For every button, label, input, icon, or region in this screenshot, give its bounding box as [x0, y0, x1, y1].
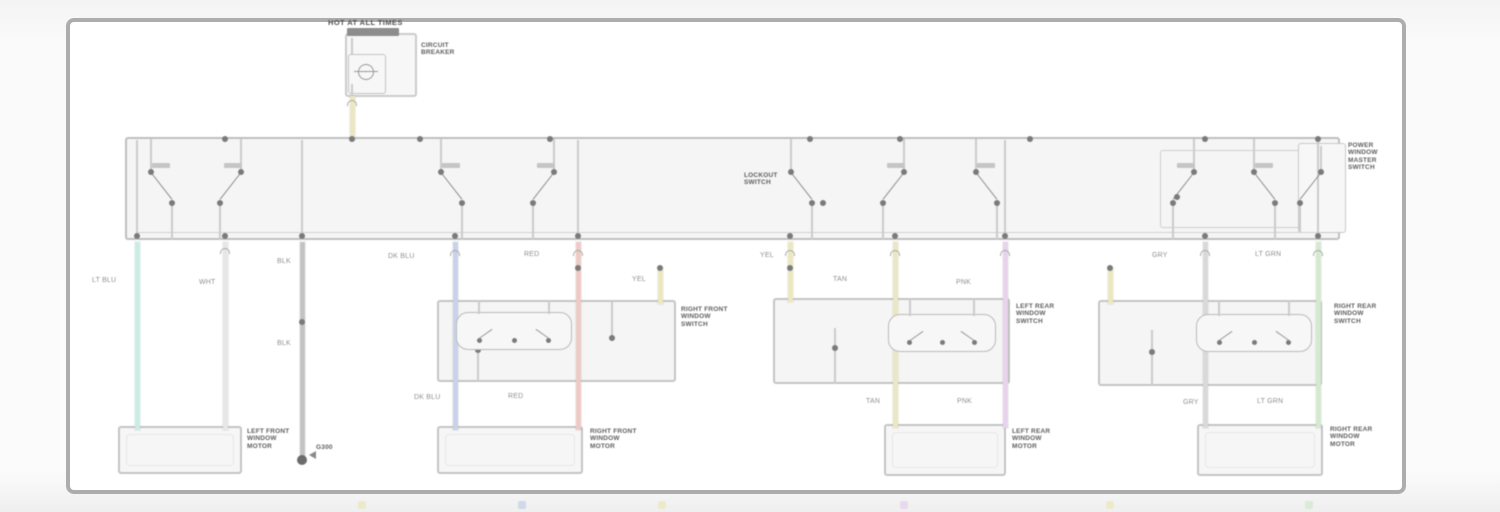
switch-4-contact-dot — [809, 200, 815, 206]
switch-1-bottom-stub — [219, 203, 221, 240]
lockout-switch-label-line: LOCKOUT — [744, 172, 778, 179]
lf-motor-label: LEFT FRONTWINDOWMOTOR — [247, 428, 289, 450]
rf-motor-label-line: WINDOW — [590, 435, 637, 442]
inline-connector-icon-3 — [573, 250, 583, 256]
junction-dot-14 — [787, 233, 793, 239]
junction-dot-2 — [417, 136, 423, 142]
wire-color-label-14: TAN — [866, 398, 880, 405]
cutoff-wire-smudge-4 — [1106, 501, 1114, 509]
junction-dot-5 — [897, 136, 903, 142]
master-switch-label-line: WINDOW — [1348, 149, 1378, 156]
switch-1-contact-dot — [217, 200, 223, 206]
junction-dot-19 — [575, 265, 581, 271]
rf-switch-rocker-contact-1 — [512, 338, 517, 343]
terminal-label-mark-3 — [537, 163, 555, 168]
junction-dot-20 — [657, 265, 663, 271]
rr-motor-label-line: WINDOW — [1330, 433, 1372, 440]
wire-color-label-4: DK BLU — [388, 253, 415, 260]
rf-motor-label: RIGHT FRONTWINDOWMOTOR — [590, 428, 637, 450]
cutoff-wire-smudge-3 — [900, 501, 908, 509]
switch-8-pivot-dot — [1251, 169, 1257, 175]
wire-color-label-1: WHT — [199, 279, 216, 286]
wire-stub-14 — [834, 328, 836, 384]
inline-connector-icon-4 — [785, 250, 795, 256]
master-right-box — [1298, 143, 1346, 233]
junction-dot-15 — [892, 233, 898, 239]
lr-motor-label-line: MOTOR — [1012, 443, 1050, 450]
junction-dot-11 — [299, 233, 305, 239]
switch-5-bottom-stub — [882, 203, 884, 240]
left-rear-motor-box-inner — [892, 432, 998, 468]
wire-stub-6 — [1317, 140, 1319, 240]
wire-stub-12 — [477, 348, 479, 382]
switch-1-pivot-dot — [238, 169, 244, 175]
rr-switch-label-line: WINDOW — [1334, 310, 1376, 317]
wire-stub-1 — [351, 84, 353, 96]
wire-color-label-16: GRY — [1183, 399, 1199, 406]
switch-7-bottom-stub — [1172, 203, 1174, 240]
rr-motor-label-line: RIGHT REAR — [1330, 426, 1372, 433]
master-switch-label-line: POWER — [1348, 142, 1378, 149]
cutoff-wire-smudge-2 — [658, 501, 666, 509]
wire-color-label-11: LT GRN — [1255, 251, 1281, 258]
wiring-diagram-page: HOT AT ALL TIMES LT BLUWHTBLKBLKDK BLURE… — [0, 0, 1500, 512]
inline-connector-icon-2 — [450, 250, 460, 256]
inline-connector-icon-0 — [347, 100, 357, 106]
lr-switch-label-line: WINDOW — [1016, 310, 1054, 317]
rr-switch-rocker-contact-1 — [1252, 340, 1257, 345]
junction-dot-18 — [1315, 233, 1321, 239]
lockout-switch-label: LOCKOUTSWITCH — [744, 172, 778, 187]
fuse-block-bus-bar — [347, 28, 399, 36]
switch-4-pivot-dot — [788, 169, 794, 175]
inline-connector-icon-1 — [220, 248, 230, 254]
switch-4-top-stub — [790, 139, 792, 172]
terminal-label-mark-0 — [152, 163, 170, 168]
master-switch-label: POWERWINDOWMASTERSWITCH — [1348, 142, 1378, 172]
rr-motor-label: RIGHT REARWINDOWMOTOR — [1330, 426, 1372, 448]
rr-switch-label-line: SWITCH — [1334, 318, 1376, 325]
lr-motor-label-line: WINDOW — [1012, 435, 1050, 442]
wire-color-label-7: YEL — [760, 252, 774, 259]
switch-7-pivot-dot — [1191, 169, 1197, 175]
lf-motor-label-line: WINDOW — [247, 435, 289, 442]
rf-switch-rocker-stub-0 — [478, 300, 480, 314]
lr-switch-label: LEFT REARWINDOWSWITCH — [1016, 303, 1054, 325]
circuit-breaker-label-line: BREAKER — [421, 49, 455, 56]
circuit-breaker-symbol — [358, 64, 374, 80]
circuit-breaker-label: CIRCUITBREAKER — [421, 42, 455, 57]
lr-switch-rocker-stub-1 — [973, 298, 975, 316]
wire-color-label-8: TAN — [833, 276, 847, 283]
wire-color-label-17: LT GRN — [1257, 398, 1283, 405]
switch-5-contact-dot — [880, 200, 886, 206]
lr-switch-rocker-contact-1 — [940, 340, 945, 345]
rf-switch-feed-wire — [658, 268, 663, 304]
wire-color-label-9: PNK — [956, 279, 971, 286]
junction-dot-8 — [1315, 136, 1321, 142]
lf-motor-label-line: LEFT FRONT — [247, 428, 289, 435]
rf-switch-rocker — [456, 312, 572, 350]
rr-switch-rocker-stub-0 — [1218, 300, 1220, 316]
right-front-motor-box-inner — [445, 434, 575, 466]
master-switch-label-line: MASTER — [1348, 157, 1378, 164]
rf-switch-label-line: RIGHT FRONT — [681, 306, 728, 313]
rf-switch-label: RIGHT FRONTWINDOWSWITCH — [681, 306, 728, 328]
terminal-label-mark-1 — [224, 163, 242, 168]
switch-6-pivot-dot — [973, 169, 979, 175]
junction-dot-3 — [547, 136, 553, 142]
wire-stub-0 — [351, 38, 353, 54]
ground-id-label: G300 — [316, 444, 333, 451]
rr-switch-rocker — [1196, 314, 1312, 352]
junction-dot-28 — [820, 200, 826, 206]
switch-3-pivot-dot — [551, 169, 557, 175]
wire-stub-5 — [1004, 140, 1006, 240]
wire-stub-3 — [301, 140, 303, 240]
junction-dot-26 — [832, 345, 838, 351]
switch-4-bottom-stub — [811, 203, 813, 240]
ground-arrow-icon — [309, 451, 316, 459]
cutoff-wire-smudge-5 — [1305, 501, 1313, 509]
rr-switch-label: RIGHT REARWINDOWSWITCH — [1334, 303, 1376, 325]
wire-stub-2 — [136, 140, 138, 240]
wire-color-label-3: BLK — [277, 340, 291, 347]
junction-dot-9 — [134, 233, 140, 239]
lr-window-down-wire — [1003, 242, 1008, 428]
inline-connector-icon-6 — [1000, 250, 1010, 256]
master-switch-label-line: SWITCH — [1348, 164, 1378, 171]
cutoff-wire-smudge-0 — [358, 501, 366, 509]
inline-connector-icon-5 — [890, 250, 900, 256]
junction-dot-7 — [1202, 136, 1208, 142]
ground-id-label-line: G300 — [316, 444, 333, 451]
lf-window-down-wire — [223, 242, 228, 430]
switch-8-contact-dot — [1272, 200, 1278, 206]
master-ground-wire — [300, 242, 305, 456]
switch-9-contact-dot — [1297, 200, 1303, 206]
junction-dot-1 — [222, 136, 228, 142]
junction-dot-22 — [1107, 265, 1113, 271]
switch-0-pivot-dot — [148, 169, 154, 175]
terminal-label-mark-6 — [1177, 163, 1195, 168]
left-front-motor-box-inner — [126, 434, 234, 466]
switch-5-pivot-dot — [901, 169, 907, 175]
rf-switch-rocker-stub-1 — [548, 300, 550, 314]
wire-color-label-13: RED — [508, 393, 523, 400]
circuit-breaker-label-line: CIRCUIT — [421, 42, 455, 49]
switch-2-contact-dot — [459, 200, 465, 206]
master-switch-box — [125, 137, 1340, 240]
switch-9-bottom-stub — [1299, 203, 1301, 232]
junction-dot-10 — [222, 233, 228, 239]
switch-8-bottom-stub — [1274, 203, 1276, 240]
lr-switch-rocker-stub-0 — [909, 298, 911, 316]
rr-switch-feed-wire — [1108, 268, 1113, 304]
junction-dot-0 — [349, 136, 355, 142]
diagram-layer: HOT AT ALL TIMES LT BLUWHTBLKBLKDK BLURE… — [0, 0, 1500, 512]
rr-switch-label-line: RIGHT REAR — [1334, 303, 1376, 310]
inline-connector-icon-7 — [1200, 250, 1210, 256]
junction-dot-25 — [609, 335, 615, 341]
switch-0-contact-dot — [169, 200, 175, 206]
master-switch-bottom-bus — [137, 232, 1318, 233]
switch-9-pivot-dot — [1318, 169, 1324, 175]
junction-dot-6 — [1027, 136, 1033, 142]
lockout-switch-label-line: SWITCH — [744, 179, 778, 186]
rf-motor-label-line: RIGHT FRONT — [590, 428, 637, 435]
rr-window-down-wire — [1316, 242, 1321, 428]
junction-dot-12 — [452, 233, 458, 239]
switch-3-bottom-stub — [532, 203, 534, 240]
right-rear-motor-box-inner — [1205, 432, 1315, 468]
junction-dot-4 — [807, 136, 813, 142]
wire-color-label-5: RED — [524, 251, 539, 258]
rf-motor-label-line: MOTOR — [590, 443, 637, 450]
cutoff-wire-smudge-1 — [518, 501, 526, 509]
switch-7-contact-dot — [1170, 200, 1176, 206]
lr-motor-label: LEFT REARWINDOWMOTOR — [1012, 428, 1050, 450]
switch-0-bottom-stub — [171, 203, 173, 240]
rr-switch-rocker-stub-1 — [1288, 300, 1290, 316]
inline-connector-icon-8 — [1313, 250, 1323, 256]
circuit-breaker-element — [354, 71, 378, 72]
wire-color-label-6: YEL — [632, 276, 646, 283]
lr-motor-label-line: LEFT REAR — [1012, 428, 1050, 435]
power-feed-title: HOT AT ALL TIMES — [328, 18, 448, 27]
lf-window-up-wire — [135, 242, 140, 430]
junction-dot-13 — [575, 233, 581, 239]
lf-motor-label-line: MOTOR — [247, 443, 289, 450]
wire-stub-15 — [1151, 330, 1153, 386]
wire-color-label-12: DK BLU — [414, 394, 441, 401]
rf-switch-label-line: SWITCH — [681, 321, 728, 328]
switch-2-bottom-stub — [461, 203, 463, 240]
terminal-label-mark-5 — [977, 163, 995, 168]
switch-6-contact-dot — [994, 200, 1000, 206]
wire-color-label-2: BLK — [277, 258, 291, 265]
terminal-label-mark-7 — [1255, 163, 1273, 168]
switch-2-pivot-dot — [438, 169, 444, 175]
switch-6-bottom-stub — [996, 203, 998, 240]
ground-terminal-dot — [297, 455, 307, 465]
junction-dot-21 — [787, 265, 793, 271]
switch-3-contact-dot — [530, 200, 536, 206]
junction-dot-16 — [1002, 233, 1008, 239]
terminal-label-mark-2 — [442, 163, 460, 168]
junction-dot-23 — [299, 319, 305, 325]
wire-color-label-15: PNK — [957, 398, 972, 405]
terminal-label-mark-4 — [887, 163, 905, 168]
junction-dot-29 — [1174, 194, 1180, 200]
wire-color-label-10: GRY — [1152, 252, 1168, 259]
lr-switch-label-line: LEFT REAR — [1016, 303, 1054, 310]
junction-dot-17 — [1202, 233, 1208, 239]
wire-color-label-0: LT BLU — [92, 277, 116, 284]
lr-switch-rocker — [888, 314, 996, 352]
junction-dot-27 — [1149, 349, 1155, 355]
rr-motor-label-line: MOTOR — [1330, 441, 1372, 448]
lr-switch-label-line: SWITCH — [1016, 318, 1054, 325]
wire-stub-4 — [577, 140, 579, 240]
rf-switch-label-line: WINDOW — [681, 313, 728, 320]
